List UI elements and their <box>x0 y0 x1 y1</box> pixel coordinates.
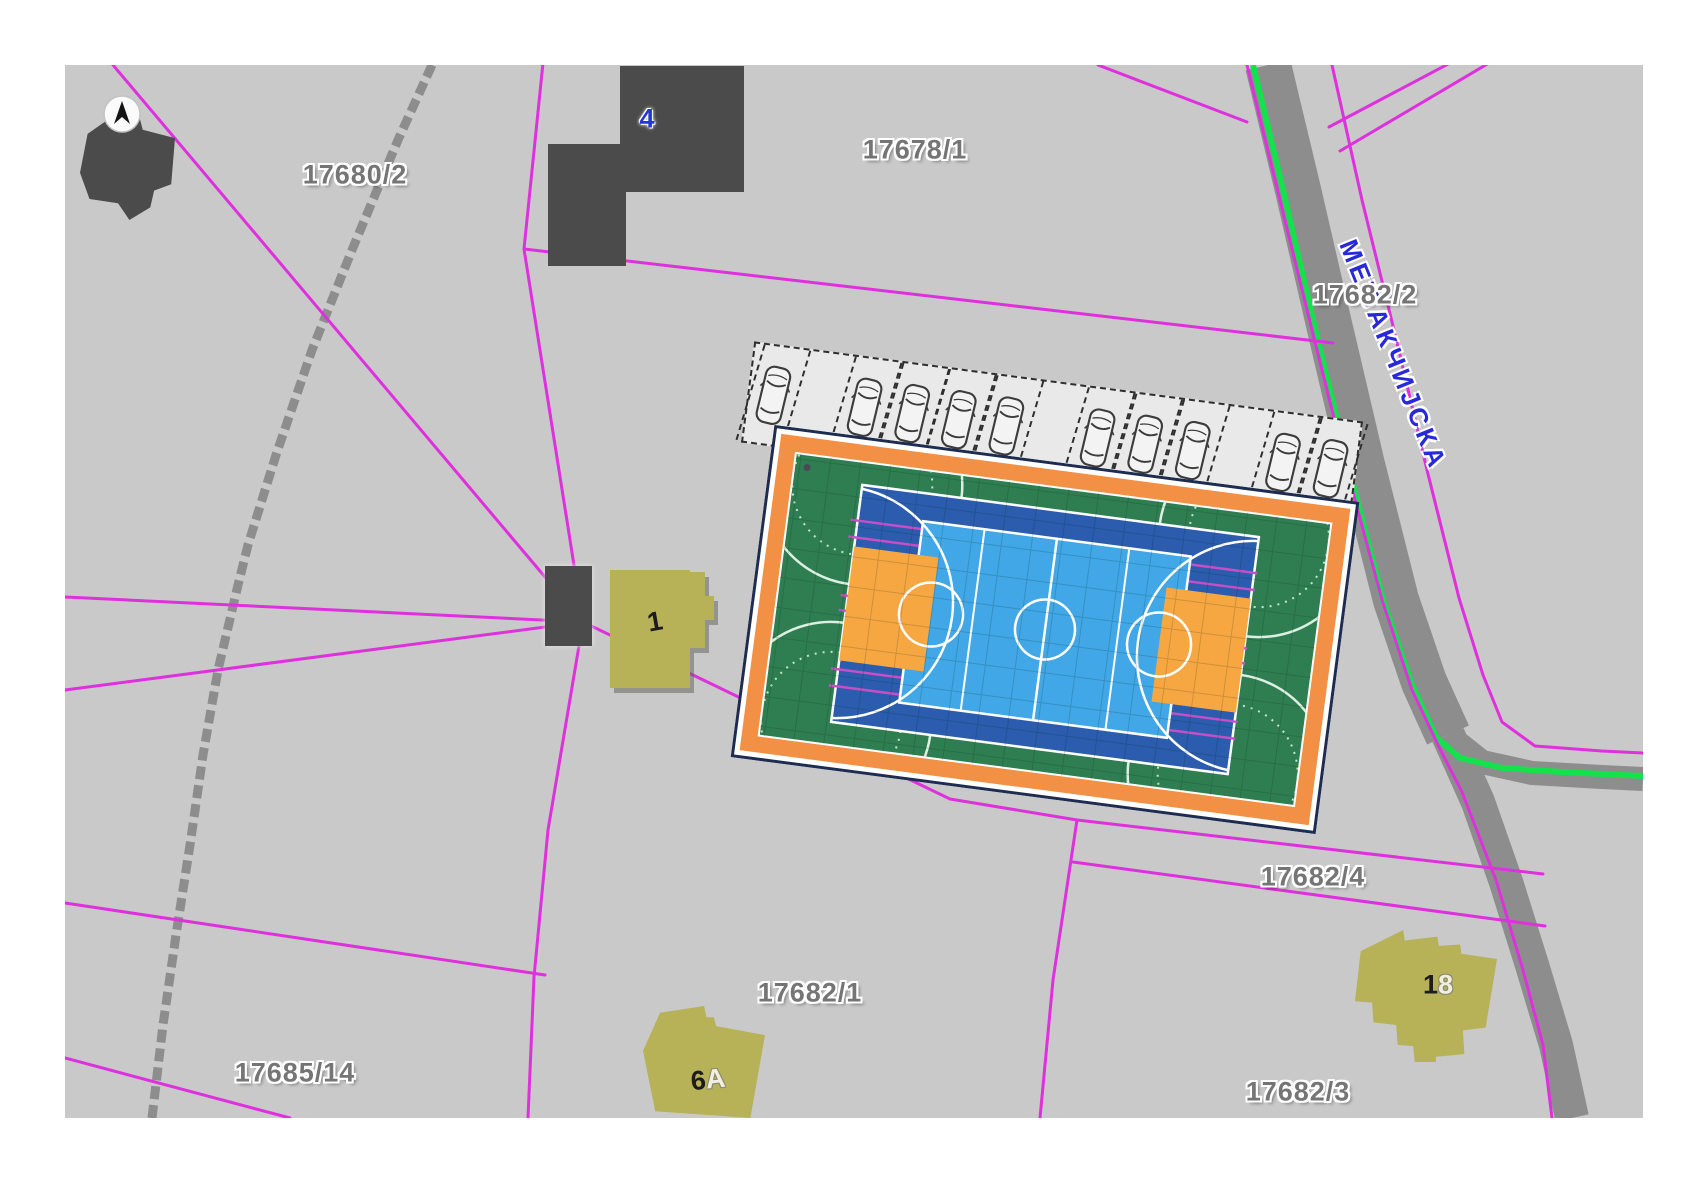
house-number-4: 4 <box>639 104 654 135</box>
house-number-18: 18 <box>1423 970 1453 1001</box>
cadastral-map: 17680/2 17678/1 17682/2 17682/4 17682/1 … <box>65 65 1643 1118</box>
parcel-label-17680-2: 17680/2 <box>303 160 408 191</box>
north-arrow <box>102 94 142 134</box>
building-wing <box>548 144 626 266</box>
parcel-label-17682-2: 17682/2 <box>1313 280 1418 311</box>
house-number-18-digit2: 8 <box>1438 970 1453 1000</box>
footpath <box>152 65 432 1118</box>
parcel-label-17682-1: 17682/1 <box>758 978 863 1009</box>
building-dark-small <box>545 566 592 646</box>
building-body <box>703 596 714 620</box>
house-number-18-digit1: 1 <box>1423 970 1438 1000</box>
car-icon <box>841 371 888 443</box>
parcel-label-17678-1: 17678/1 <box>863 135 968 166</box>
house-number-6a: 6A <box>689 1063 727 1097</box>
house-number-4-text: 4 <box>639 104 654 134</box>
parcel-label-17682-3: 17682/3 <box>1246 1077 1351 1108</box>
house-number-6a-suffix: A <box>704 1063 727 1095</box>
car-icon <box>1122 408 1169 480</box>
building-number-4 <box>548 66 744 266</box>
car-icon <box>1307 433 1354 505</box>
north-arrow-icon <box>102 94 142 134</box>
parcel-label-17685-14: 17685/14 <box>235 1058 356 1089</box>
parcel-label-17682-4: 17682/4 <box>1261 862 1366 893</box>
